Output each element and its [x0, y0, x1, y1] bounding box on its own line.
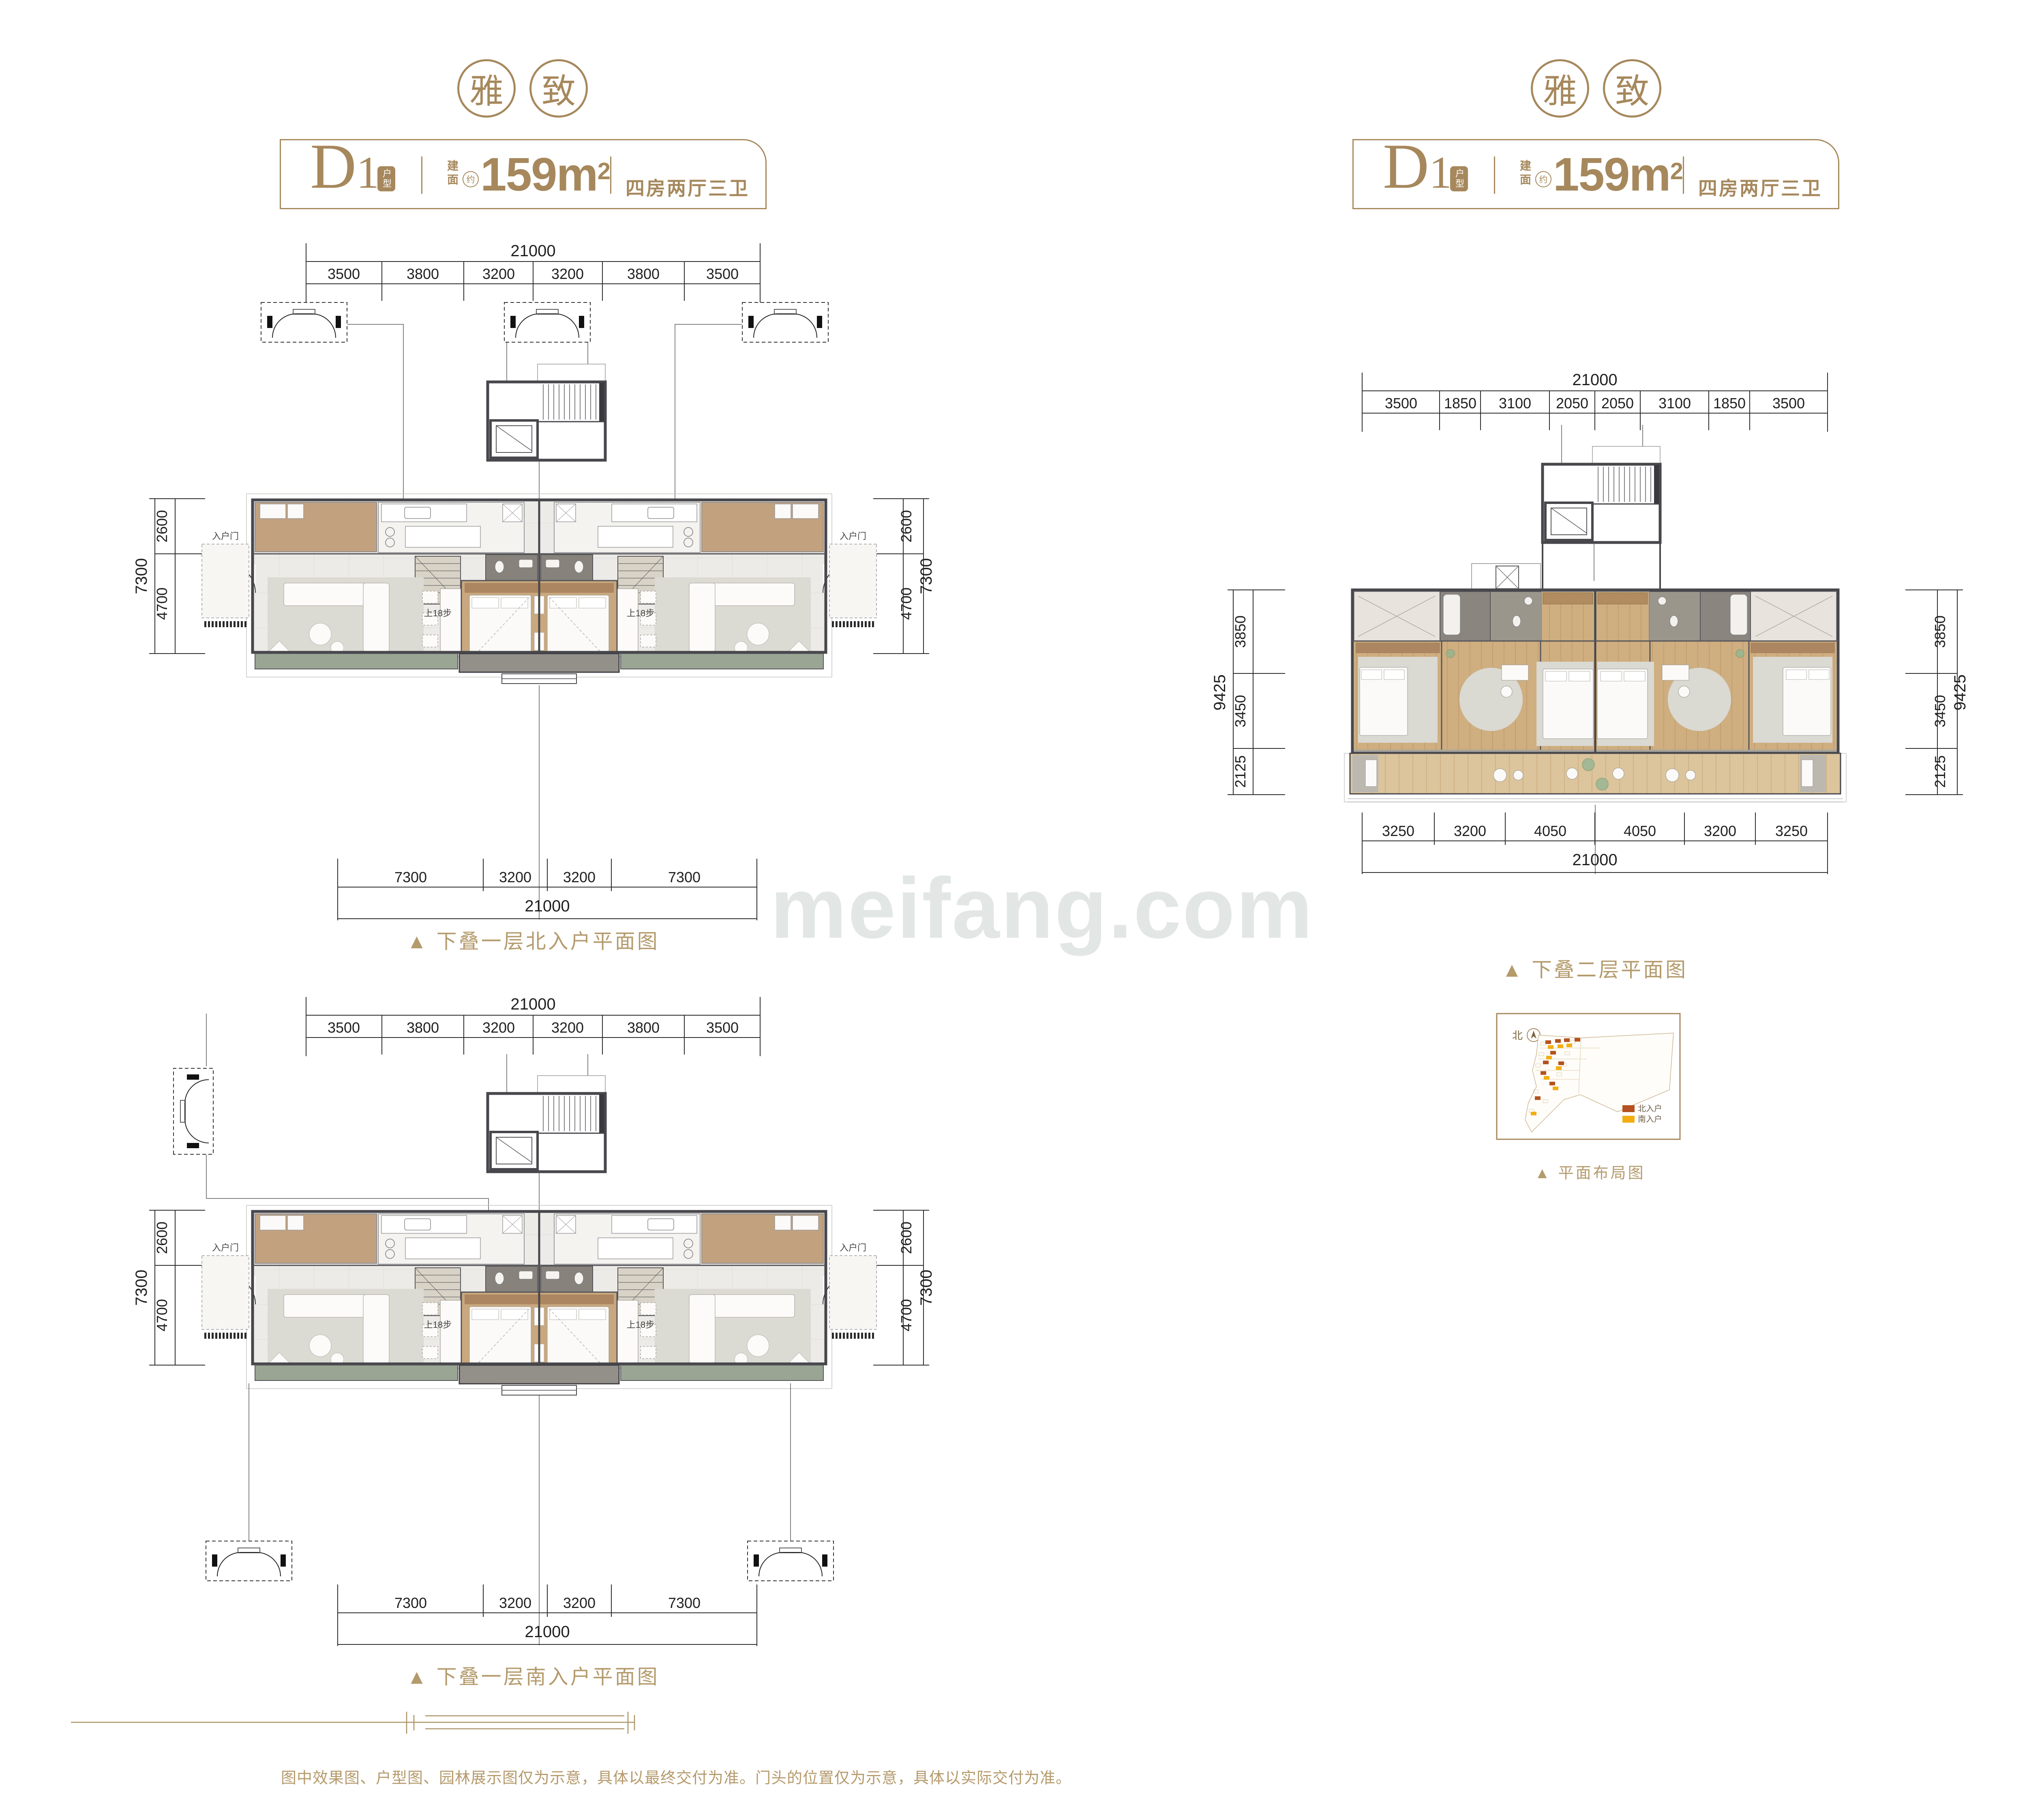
site-layout-map: 北 北入户	[1484, 1005, 1695, 1160]
legend-swatch-north	[1622, 1105, 1635, 1112]
badge-char-circle: 致	[1603, 59, 1661, 118]
dimension-label: 3200	[551, 1019, 584, 1036]
dimension-total: 9425	[1951, 675, 1969, 711]
entry-label: 入户门	[840, 1243, 866, 1253]
divider	[610, 156, 611, 194]
dimension-label: 3800	[627, 266, 660, 282]
badge-char-circle: 雅	[1531, 59, 1589, 118]
entry-label: 入户门	[840, 531, 866, 541]
dimension-label: 3800	[627, 1019, 660, 1036]
badge-char-circle: 致	[529, 59, 588, 118]
caption-second-floor: ▲ 下叠二层平面图	[1502, 954, 1688, 983]
dimension-chain-left: 7300 2600 4700	[133, 499, 205, 654]
stair-label: 上18步	[424, 608, 452, 618]
rooms-label: 四房两厅三卫	[1698, 173, 1822, 201]
dimension-label: 2600	[154, 1222, 170, 1254]
dimension-total: 21000	[525, 897, 570, 915]
badge-char-circle: 雅	[457, 59, 516, 118]
dimension-label: 1850	[1444, 395, 1476, 412]
porch-connectors	[249, 1383, 791, 1541]
unit-header-left: D1 户型 建面 约 159m2 四房两厅三卫	[280, 139, 767, 209]
dimension-label: 3200	[551, 266, 584, 282]
entry-label: 入户门	[212, 1243, 239, 1253]
dimension-label: 3800	[407, 266, 439, 282]
dimension-label: 2600	[154, 510, 170, 542]
dimension-label: 3500	[706, 1019, 739, 1036]
dimension-label: 3250	[1382, 823, 1414, 839]
unit-code: D1	[1383, 135, 1452, 205]
dimension-label: 2600	[898, 1222, 915, 1254]
dimension-label: 4050	[1624, 823, 1656, 839]
dimension-chain-right: 7300 2600 4700	[873, 1210, 935, 1365]
dimension-chain-bottom: 7300 3200 3200 7300 21000	[338, 1584, 757, 1646]
dimension-label: 3200	[563, 1595, 596, 1611]
divider	[421, 156, 422, 194]
dimension-label: 3200	[499, 1595, 531, 1611]
stair-label: 上18步	[424, 1320, 452, 1330]
dimension-label: 7300	[668, 1595, 701, 1611]
divider	[1494, 156, 1495, 194]
dimension-label: 3200	[499, 869, 531, 885]
legend-label-south: 南入户	[1638, 1115, 1662, 1124]
legend-label-north: 北入户	[1638, 1104, 1662, 1113]
disclaimer-text: 图中效果图、户型图、园林展示图仅为示意，具体以最终交付为准。门头的位置仅为示意，…	[281, 1765, 1071, 1788]
dimension-label: 4050	[1534, 823, 1566, 839]
series-badge-right: 雅 致	[1531, 59, 1661, 118]
dimension-label: 1850	[1713, 395, 1746, 412]
dimension-label: 3850	[1932, 615, 1948, 648]
dimension-chain-top: 21000 3500 3800 3200 3200 3800 3500	[306, 242, 760, 302]
dimension-label: 3500	[706, 266, 739, 282]
dimension-label: 3250	[1775, 823, 1808, 839]
duplex-upper-body	[1344, 590, 1846, 802]
unit-type-chip: 户型	[377, 166, 395, 191]
dimension-label: 3450	[1232, 695, 1249, 727]
dimension-label: 3200	[482, 266, 515, 282]
approx-circle: 约	[1535, 171, 1551, 187]
floorplan-sheet: 雅 致 雅 致 D1 户型 建面 约 159m2 四房两厅三卫 D1 户型 建面…	[0, 0, 2027, 1820]
dimension-total: 9425	[1211, 675, 1229, 711]
dimension-label: 3450	[1932, 695, 1948, 727]
dimension-chain-top: 21000 3500 1850 3100 2050 2050 3100 1850…	[1362, 371, 1828, 432]
floorplan-second: 21000 3500 1850 3100 2050 2050 3100 1850…	[1192, 365, 1986, 888]
rooms-label: 四房两厅三卫	[626, 173, 750, 201]
approx-circle: 约	[463, 171, 479, 187]
dimension-label: 3500	[1385, 395, 1417, 412]
dimension-label: 2050	[1601, 395, 1634, 412]
dimension-label: 4700	[154, 587, 170, 620]
dimension-label: 4700	[898, 1299, 915, 1331]
dimension-chain-bottom: 3250 3200 4050 4050 3200 3250 21000	[1362, 812, 1828, 874]
badge-char: 雅	[1543, 64, 1577, 113]
dimension-label: 3100	[1658, 395, 1691, 412]
dimension-label: 3200	[1704, 823, 1736, 839]
dimension-label: 2125	[1932, 755, 1948, 788]
dimension-label: 7300	[394, 869, 427, 885]
dimension-total: 21000	[1572, 371, 1617, 389]
dimension-label: 2050	[1556, 395, 1588, 412]
dimension-label: 3800	[407, 1019, 439, 1036]
area-label: 建面	[444, 160, 460, 187]
stair-label: 上18步	[627, 1320, 654, 1330]
decorative-divider	[65, 1683, 681, 1747]
area-value: 159m2	[1553, 149, 1682, 197]
dimension-total: 7300	[917, 558, 935, 594]
dimension-total: 21000	[510, 995, 555, 1013]
dimension-chain-right: 9425 3850 3450 2125	[1905, 590, 1969, 795]
badge-char: 致	[542, 64, 576, 113]
watermark: meifang.com	[770, 859, 1314, 958]
dimension-chain-left: 7300 2600 4700	[133, 1210, 205, 1365]
dimension-total: 7300	[133, 1270, 150, 1306]
corridor-lines	[206, 1014, 489, 1211]
area-value: 159m2	[480, 149, 610, 197]
dimension-label: 7300	[668, 869, 701, 885]
floorplan-north-first: 21000 3500 3800 3200 3200 3800 3500 7300…	[134, 227, 945, 941]
dimension-label: 2125	[1232, 755, 1249, 788]
dimension-label: 3500	[328, 266, 360, 282]
dimension-label: 3200	[563, 869, 596, 885]
caption-north-first: ▲ 下叠一层北入户平面图	[407, 925, 659, 954]
north-label: 北	[1512, 1029, 1523, 1042]
dimension-label: 3850	[1232, 615, 1249, 648]
dimension-total: 7300	[917, 1270, 935, 1306]
dimension-label: 2600	[898, 510, 915, 542]
unit-type-chip: 户型	[1450, 166, 1468, 191]
dimension-label: 3100	[1499, 395, 1531, 412]
divider	[1683, 156, 1684, 194]
area-label: 建面	[1517, 160, 1533, 187]
dimension-label: 4700	[898, 587, 915, 620]
series-badge-left: 雅 致	[457, 59, 588, 118]
dimension-label: 3500	[1772, 395, 1805, 412]
floorplan-south-first: 21000 3500 3800 3200 3200 3800 3500 7300…	[134, 973, 945, 1662]
dimension-total: 21000	[510, 242, 555, 260]
badge-char: 致	[1615, 64, 1649, 113]
stair-label: 上18步	[627, 608, 654, 618]
dimension-chain-right: 7300 2600 4700	[873, 499, 935, 654]
dimension-total: 7300	[133, 558, 150, 594]
unit-header-right: D1 户型 建面 约 159m2 四房两厅三卫	[1352, 139, 1839, 209]
dimension-label: 3200	[482, 1019, 515, 1036]
dimension-label: 4700	[154, 1299, 170, 1331]
unit-code: D1	[310, 135, 379, 205]
legend-swatch-south	[1622, 1116, 1635, 1123]
dimension-chain-bottom: 7300 3200 3200 7300 21000	[338, 859, 757, 920]
entry-label: 入户门	[212, 531, 239, 541]
dimension-total: 21000	[525, 1623, 570, 1641]
dimension-chain-left: 9425 3850 3450 2125	[1211, 590, 1285, 795]
dimension-label: 3200	[1454, 823, 1486, 839]
dimension-label: 3500	[328, 1019, 360, 1036]
dimension-chain-top: 21000 3500 3800 3200 3200 3800 3500	[306, 995, 760, 1056]
badge-char: 雅	[469, 64, 504, 113]
caption-site-layout: ▲ 平面布局图	[1534, 1160, 1645, 1183]
dimension-total: 21000	[1572, 851, 1617, 869]
dimension-label: 7300	[394, 1595, 427, 1611]
